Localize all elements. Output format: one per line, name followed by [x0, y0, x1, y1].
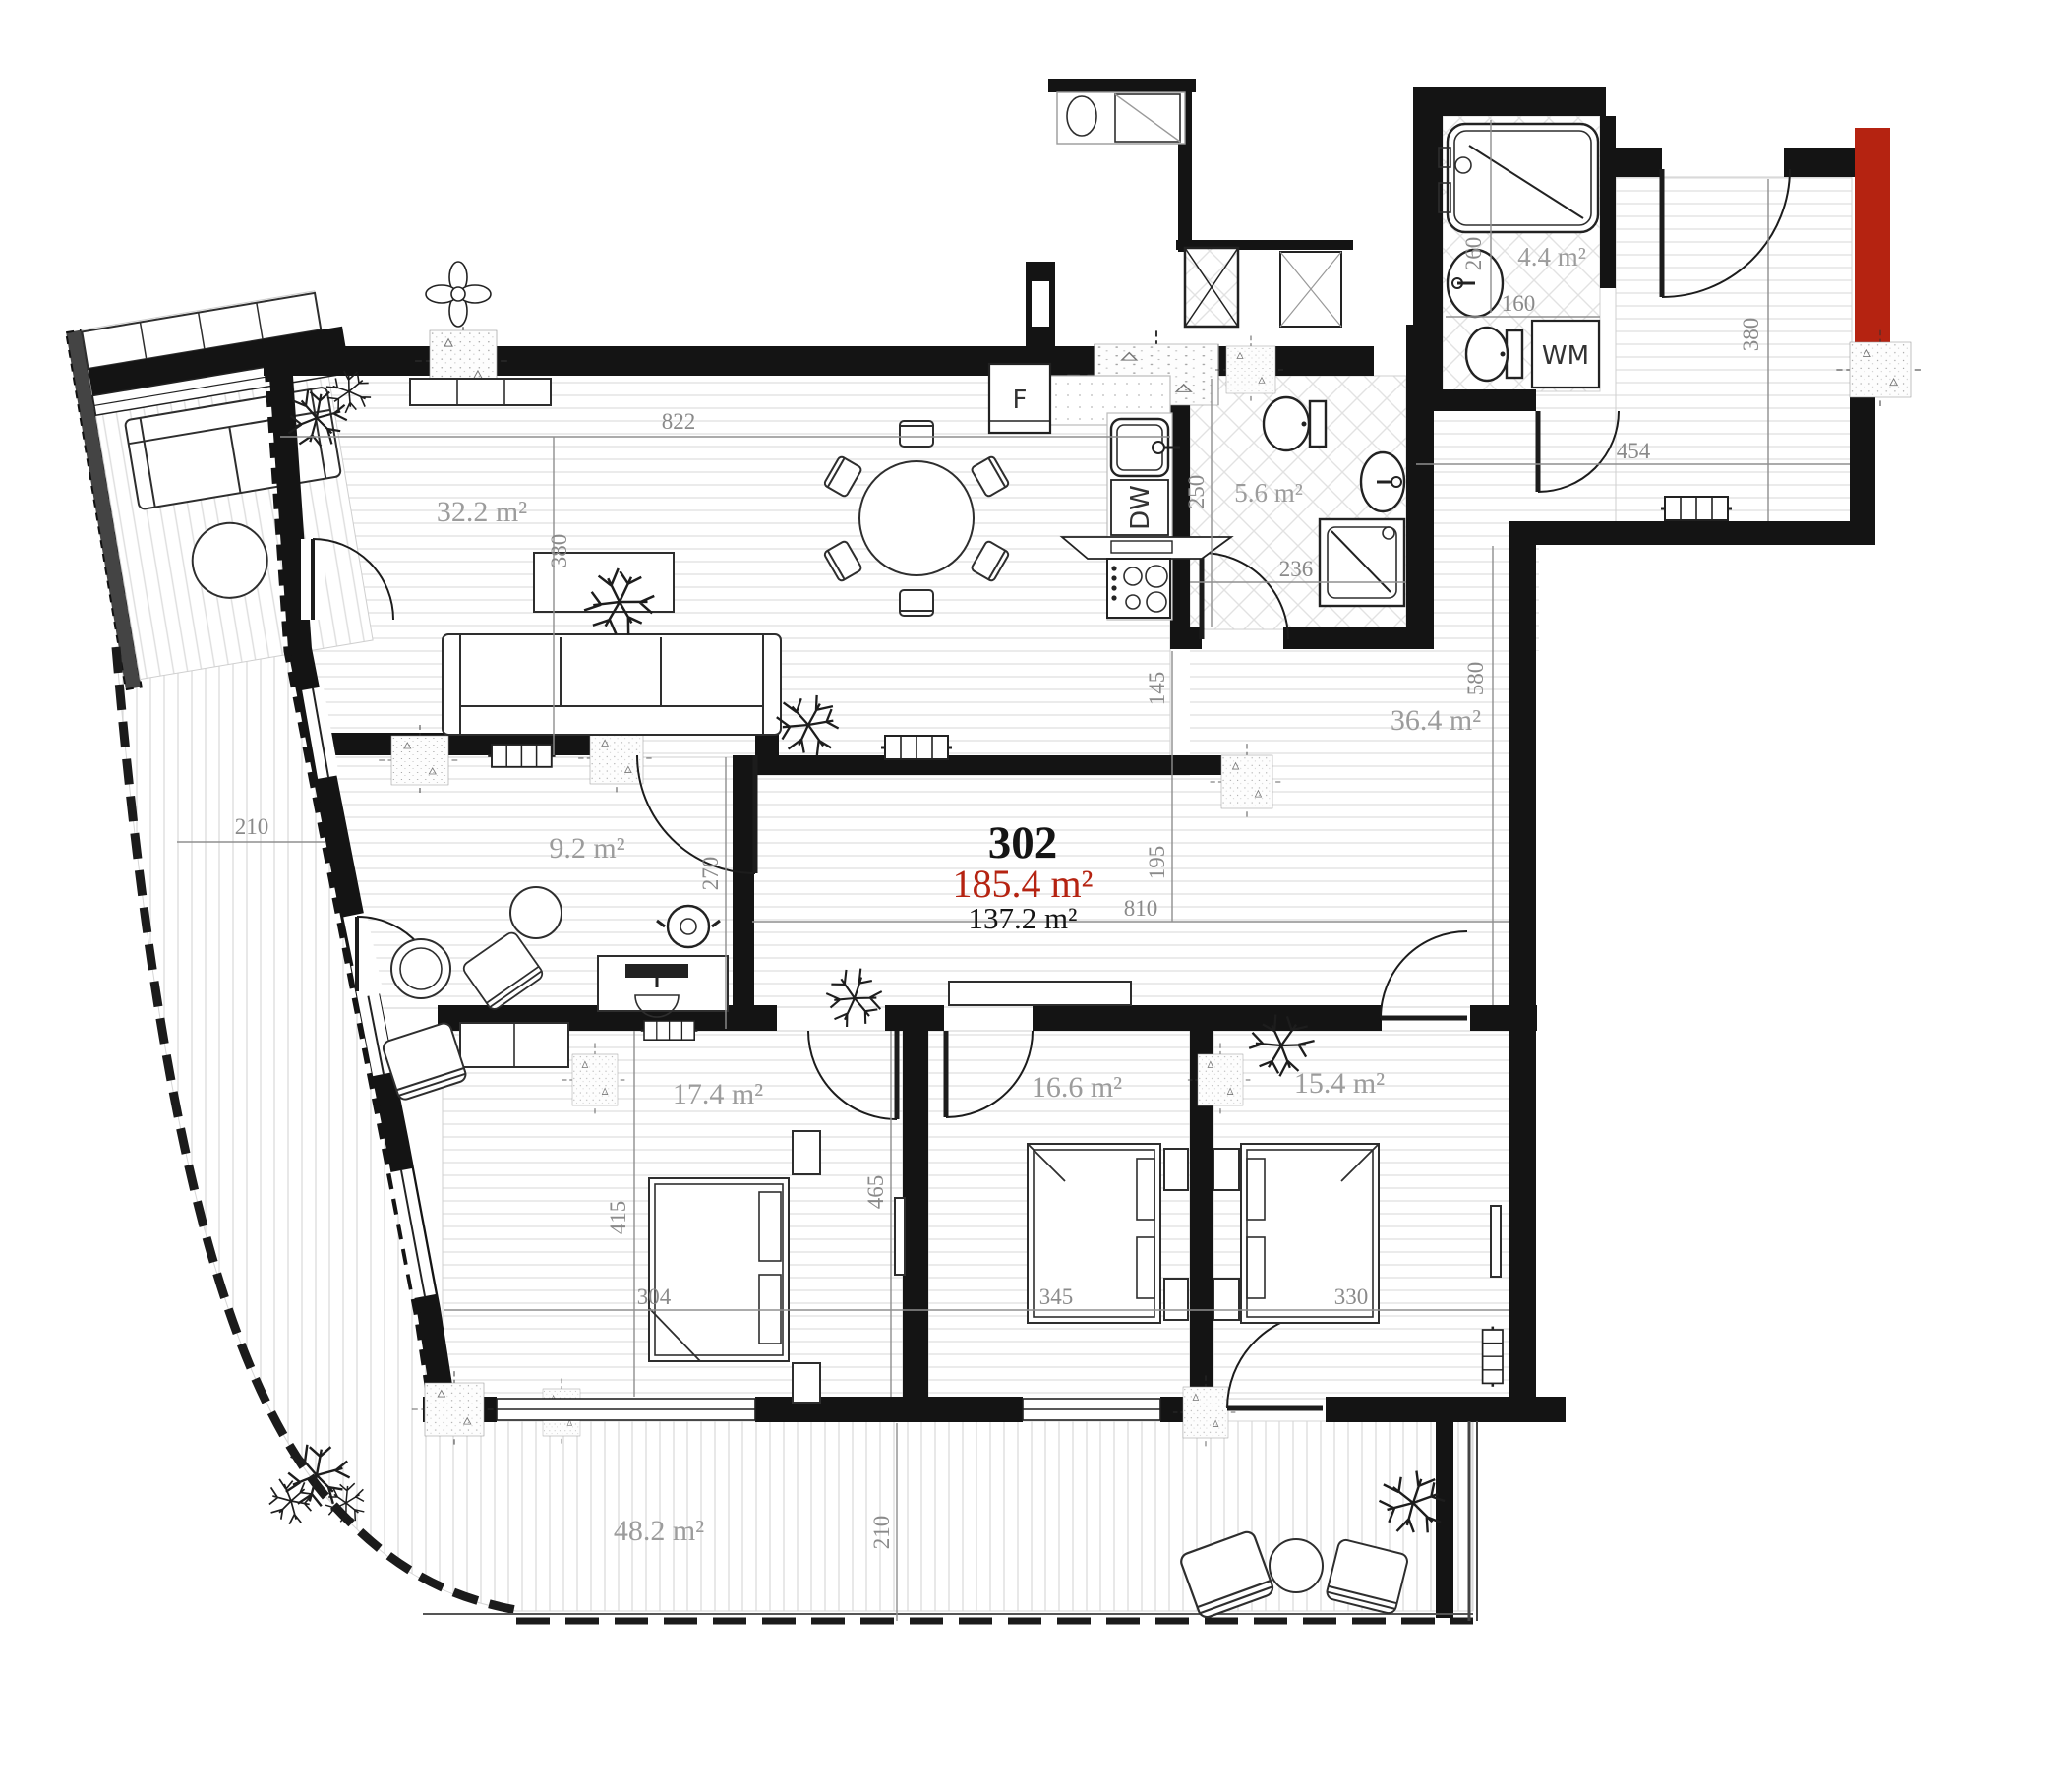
plant-icon: [269, 1479, 313, 1524]
wall-office-right: [733, 755, 754, 1031]
terrace-table-icon: [1270, 1539, 1323, 1592]
hall-area-label: 36.4 m²: [1391, 704, 1481, 737]
dim-bath-w: 160: [1502, 291, 1536, 316]
dim-hall-h: 580: [1463, 662, 1488, 696]
desk-icon: [598, 956, 728, 1017]
pouf-icon: [510, 887, 562, 938]
wc-sink-icon: [1361, 452, 1404, 511]
wall-entry-top-a: [1603, 148, 1662, 177]
wc-area-label: 5.6 m²: [1234, 478, 1303, 508]
tv-bed3-icon: [1491, 1206, 1501, 1277]
wall-niche-notch: [1032, 281, 1049, 327]
wall-entry-bottom: [1509, 521, 1873, 545]
wall-wc-bottom-a: [1170, 627, 1202, 649]
dim-entry-h: 380: [1739, 318, 1763, 352]
bedroom1-area-label: 17.4 m²: [673, 1078, 763, 1110]
dim-terrace-left: 210: [235, 814, 269, 839]
stove-icon: [1107, 559, 1170, 618]
dim-wc-w: 236: [1279, 557, 1314, 581]
dim-hall-gap1: 145: [1145, 672, 1169, 706]
hall-floor: [747, 775, 1524, 1007]
living-area-label: 32.2 m²: [437, 496, 527, 528]
dim-wc-h: 250: [1184, 475, 1209, 509]
radiator-bed1: [641, 1021, 698, 1040]
window-bedroom2-terrace: [1023, 1399, 1160, 1420]
sofa-icon: [443, 634, 781, 735]
shafts: [1185, 248, 1341, 327]
dim-beds-h: 465: [863, 1175, 888, 1210]
washing-machine-label: WM: [1542, 341, 1589, 371]
dim-office-h: 270: [698, 857, 723, 891]
unit-area-net: 137.2 m²: [969, 901, 1078, 935]
dim-entry-w: 454: [1617, 439, 1651, 463]
red-accent-wall: [1855, 128, 1890, 342]
range-hood-icon: [1062, 537, 1231, 559]
dim-bed2-w: 345: [1039, 1284, 1074, 1309]
dim-hall-w: 810: [1124, 896, 1158, 921]
radiator-bed3: [1483, 1327, 1503, 1387]
wall-office-top: [317, 733, 637, 755]
bedroom2-area-label: 16.6 m²: [1032, 1071, 1122, 1104]
dim-terrace-h: 210: [869, 1516, 894, 1550]
wall-office-corner: [755, 733, 779, 775]
floor-plan: F DW: [0, 0, 2071, 1792]
wall-bath-left: [1413, 87, 1443, 393]
radiator-entry: [1661, 497, 1732, 520]
tv-bed1-icon: [895, 1198, 905, 1275]
unit-area-total: 185.4 m²: [952, 862, 1093, 906]
wall-bed1-bed2: [903, 1031, 928, 1399]
terrace-area-label: 48.2 m²: [614, 1515, 704, 1547]
wall-beds-top-b: [885, 1005, 944, 1031]
bedroom3-area-label: 15.4 m²: [1294, 1067, 1385, 1100]
office-area-label: 9.2 m²: [549, 832, 624, 865]
wall-living-hall-stub: [779, 755, 1223, 775]
wall-beds-top-c: [1033, 1005, 1382, 1031]
radiator-living: [881, 736, 952, 759]
window-bedroom1-terrace: [497, 1399, 755, 1420]
wall-right: [1509, 521, 1536, 1421]
sideboard-icon: [410, 379, 551, 405]
toilet-icon: [1264, 397, 1326, 450]
entry-floor: [1616, 177, 1852, 523]
bath-toilet-icon: [1466, 328, 1522, 381]
fridge-label: F: [1013, 386, 1028, 415]
wall-kitchen-wc: [1170, 376, 1190, 649]
wall-beds-bottom-d: [1326, 1397, 1566, 1422]
radiator-office: [488, 745, 555, 767]
wall-neighbour-top: [1048, 79, 1196, 92]
dim-living-w: 822: [662, 409, 696, 434]
dim-bed3-w: 330: [1334, 1284, 1369, 1309]
neighbour-fixtures: [1057, 92, 1185, 144]
ceiling-fan-icon: [426, 262, 491, 327]
wc-shower-icon: [1320, 519, 1404, 606]
dim-bath-h: 260: [1461, 237, 1486, 271]
wall-terrace-right: [1436, 1421, 1453, 1618]
dim-bed1-w: 304: [637, 1284, 672, 1309]
dim-living-h: 380: [547, 534, 571, 568]
dishwasher-label: DW: [1126, 485, 1155, 530]
wall-bath-bottom: [1413, 389, 1536, 411]
bath-lobby-floor: [1416, 393, 1616, 523]
bathroom-area-label: 4.4 m²: [1517, 242, 1586, 271]
bathtub-icon: [1439, 124, 1598, 232]
wall-bath-right: [1600, 116, 1616, 288]
dim-hall-gap2: 195: [1145, 846, 1169, 880]
hall-console-icon: [949, 982, 1131, 1005]
dim-bed1-h: 415: [606, 1201, 630, 1235]
wall-beds-top-d: [1470, 1005, 1537, 1031]
